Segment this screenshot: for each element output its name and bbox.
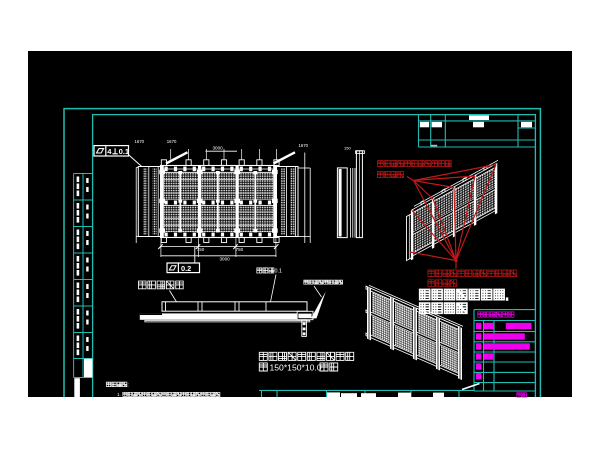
svg-text:0.1: 0.1 xyxy=(275,269,283,275)
svg-text:150*150*10.0: 150*150*10.0 xyxy=(270,363,322,373)
svg-text:750: 750 xyxy=(236,247,244,252)
svg-text:3000: 3000 xyxy=(213,145,224,150)
svg-text:1.: 1. xyxy=(117,392,121,397)
svg-text:750: 750 xyxy=(197,247,205,252)
svg-text:0.2: 0.2 xyxy=(181,264,191,273)
svg-text:1670: 1670 xyxy=(135,139,145,144)
svg-text:1670: 1670 xyxy=(299,143,309,148)
svg-text::: : xyxy=(128,382,129,388)
svg-text:3000: 3000 xyxy=(220,257,231,262)
svg-text:1670: 1670 xyxy=(167,139,177,144)
svg-text:0.1: 0.1 xyxy=(119,147,130,156)
svg-text:150: 150 xyxy=(344,146,351,151)
